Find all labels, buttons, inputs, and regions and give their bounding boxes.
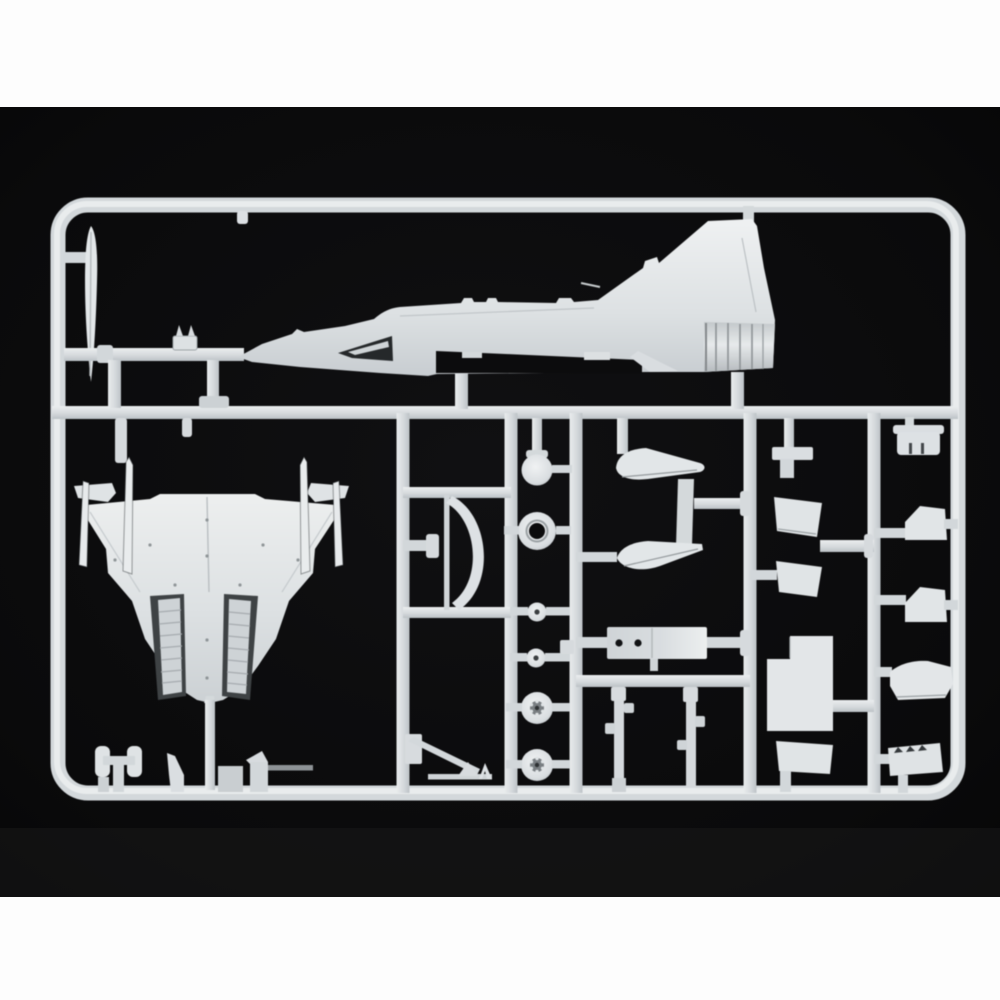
sprue-photo	[0, 0, 1000, 1000]
gate-stub	[182, 418, 192, 437]
runner-b-c	[505, 413, 518, 793]
door-3	[776, 741, 833, 774]
exhaust-nozzle	[704, 322, 775, 372]
door-1	[774, 497, 822, 537]
fitting-5	[888, 743, 943, 776]
backdrop-lower-glow	[0, 828, 1000, 897]
photo-stage	[0, 0, 1000, 1000]
fitting-1	[897, 432, 940, 455]
white-band-top	[0, 0, 1000, 107]
door-bracket	[772, 447, 813, 460]
runner-d-e	[744, 413, 757, 793]
disc-1	[522, 455, 553, 486]
gate-stub	[115, 418, 127, 463]
white-band-bottom	[0, 897, 1000, 1000]
door-2	[776, 561, 822, 597]
gate-stub	[237, 211, 248, 224]
fitting-4	[890, 661, 953, 700]
